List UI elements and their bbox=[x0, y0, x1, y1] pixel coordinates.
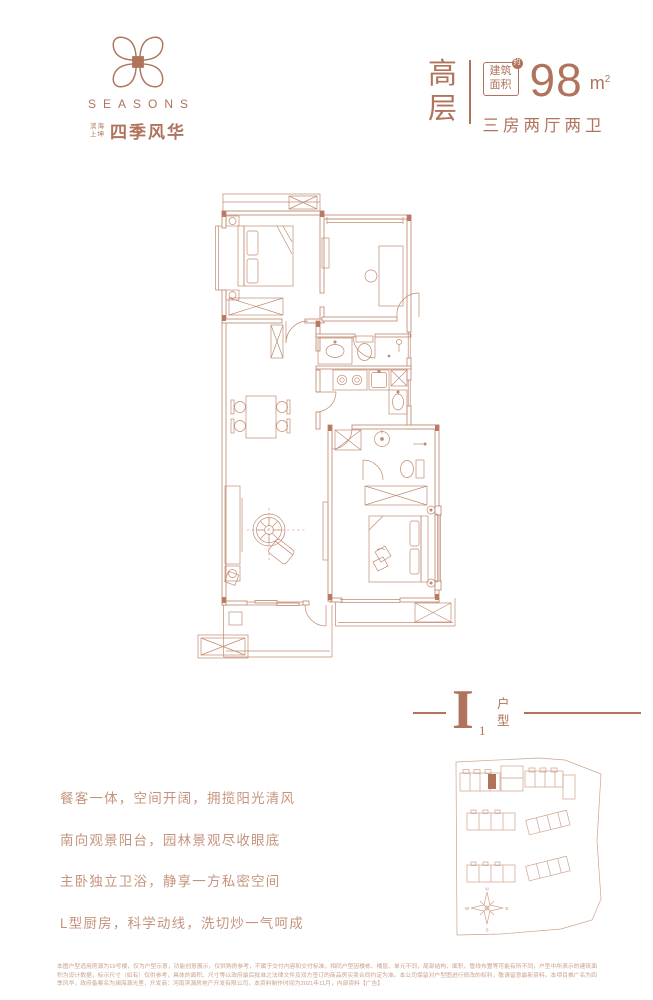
brand-subrow: 滨海 上坤 四季风华 bbox=[60, 118, 216, 143]
disclaimer-text: 本图户型适用房源为19号楼，仅为户型示意，功能创意展示，仅供购房参考，不属于交付… bbox=[57, 963, 597, 989]
ac-box-se bbox=[415, 603, 451, 622]
site-plan: N E S W bbox=[443, 753, 618, 948]
bedroom-nw-furniture bbox=[226, 216, 293, 300]
tier-label: 高 层 bbox=[428, 57, 457, 136]
slider-panel bbox=[255, 601, 277, 604]
unit-label: I 1 户 型 bbox=[0, 686, 653, 746]
area-unit: m2 bbox=[590, 73, 611, 94]
compass-n: N bbox=[485, 887, 488, 892]
bathroom-1-fixtures bbox=[318, 336, 402, 364]
wardrobe-box bbox=[229, 298, 283, 315]
master-wardrobe-box bbox=[365, 486, 427, 505]
washer-box bbox=[335, 430, 361, 450]
master-bath-fixtures bbox=[375, 430, 427, 478]
feature-item: 餐客一体，空间开阔，拥揽阳光清风 bbox=[60, 787, 304, 807]
spec-right: 建筑 面积 约 98 m2 三房两厅两卫 bbox=[483, 57, 611, 136]
feature-item: 南向观景阳台，园林景观尽收眼底 bbox=[60, 829, 304, 849]
compass-rose: N E S W bbox=[465, 887, 509, 933]
layout-text: 三房两厅两卫 bbox=[483, 112, 611, 136]
brand-developer: 滨海 上坤 bbox=[90, 123, 105, 139]
area-value: 98 bbox=[530, 57, 583, 103]
unit-label-right-line bbox=[524, 712, 641, 714]
master-bedroom-furniture bbox=[369, 506, 435, 587]
living-furniture bbox=[225, 486, 328, 585]
unit-number: 1 bbox=[479, 723, 486, 739]
kitchen-fixtures bbox=[333, 370, 407, 414]
brand-cn-name: 四季风华 bbox=[110, 118, 186, 143]
kitchen-unit-box bbox=[391, 370, 407, 386]
doors bbox=[286, 293, 419, 626]
compass-s: S bbox=[485, 928, 488, 933]
compass-w: W bbox=[465, 906, 470, 911]
spec-divider bbox=[469, 60, 471, 124]
ac-box-sw bbox=[201, 638, 245, 655]
brand-logo: SEASONS 滨海 上坤 四季风华 bbox=[60, 33, 216, 143]
feature-item: 主卧独立卫浴，静享一方私密空间 bbox=[60, 870, 304, 890]
floor-plan-drawing bbox=[185, 180, 475, 690]
ac-box bbox=[289, 196, 317, 209]
area-value-group: 98 m2 bbox=[530, 57, 611, 103]
closet-box bbox=[271, 325, 283, 358]
site-boundary bbox=[456, 758, 601, 935]
study-furniture bbox=[322, 238, 403, 306]
area-badge: 建筑 面积 约 bbox=[483, 62, 519, 96]
floorplan-poster: { "brand": { "wordmark": "SEASONS", "sub… bbox=[0, 0, 653, 1000]
feature-list: 餐客一体，空间开阔，拥揽阳光清风 南向观景阳台，园林景观尽收眼底 主卧独立卫浴，… bbox=[60, 787, 304, 953]
dining-furniture bbox=[231, 396, 290, 438]
spec-block: 高 层 建筑 面积 约 98 m2 三房两厅两卫 bbox=[428, 57, 610, 136]
walls bbox=[222, 211, 441, 605]
seasons-flower-icon bbox=[109, 33, 167, 91]
compass-e: E bbox=[505, 906, 508, 911]
unit-label-left-line bbox=[413, 712, 446, 714]
unit-type-chars: 户 型 bbox=[497, 696, 510, 730]
site-buildings bbox=[460, 766, 575, 882]
highlighted-building-19 bbox=[488, 774, 496, 789]
brand-wordmark: SEASONS bbox=[60, 97, 216, 111]
feature-item: L型厨房，科学动线，洗切炒一气呵成 bbox=[60, 912, 304, 932]
unit-letter: I bbox=[452, 682, 474, 738]
approx-circle: 约 bbox=[512, 58, 523, 69]
slider-panel bbox=[277, 603, 299, 606]
